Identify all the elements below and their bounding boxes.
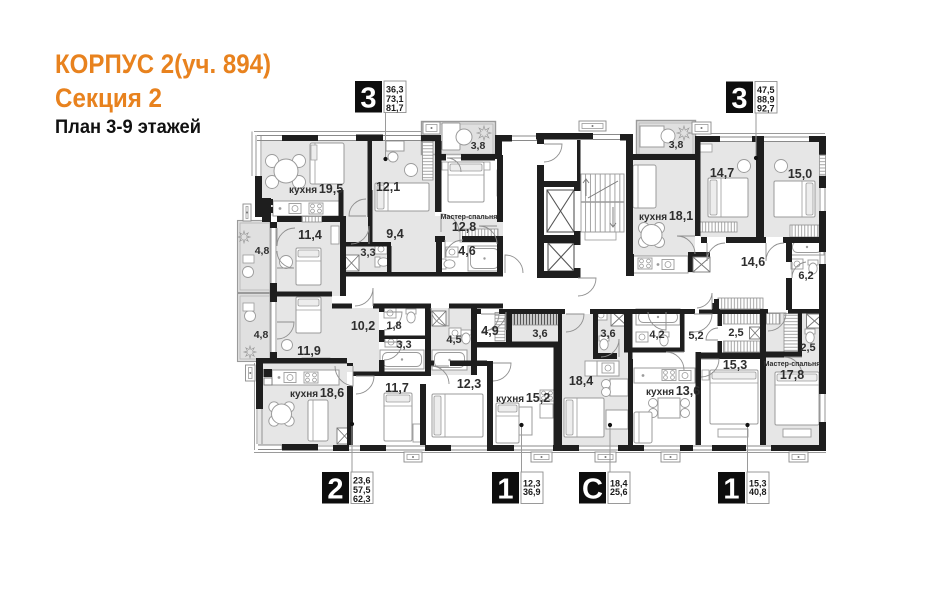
- svg-text:18,6: 18,6: [320, 386, 344, 400]
- svg-text:Мастер-спальня: Мастер-спальня: [764, 361, 821, 368]
- svg-text:81,7: 81,7: [386, 103, 404, 113]
- svg-text:2,5: 2,5: [800, 342, 815, 354]
- svg-text:кухня: кухня: [496, 394, 524, 405]
- svg-text:3,6: 3,6: [532, 328, 547, 340]
- svg-text:кухня: кухня: [289, 185, 317, 196]
- svg-text:кухня: кухня: [646, 387, 674, 398]
- svg-text:19,5: 19,5: [319, 182, 343, 196]
- svg-text:36,9: 36,9: [523, 487, 541, 497]
- svg-text:4,5: 4,5: [446, 334, 461, 346]
- svg-text:5,2: 5,2: [688, 330, 703, 342]
- svg-text:2: 2: [327, 474, 343, 506]
- svg-text:3,3: 3,3: [396, 339, 411, 351]
- svg-text:3: 3: [731, 83, 747, 115]
- svg-text:13,6: 13,6: [676, 384, 700, 398]
- svg-text:14,7: 14,7: [710, 166, 734, 180]
- svg-text:18,1: 18,1: [669, 209, 693, 223]
- svg-text:4,6: 4,6: [458, 244, 475, 258]
- svg-text:15,2: 15,2: [526, 391, 550, 405]
- svg-text:6,2: 6,2: [798, 270, 813, 282]
- svg-text:4,2: 4,2: [649, 329, 664, 341]
- svg-text:КОРПУС 2(уч. 894): КОРПУС 2(уч. 894): [55, 49, 271, 79]
- svg-text:11,4: 11,4: [298, 228, 322, 242]
- svg-text:12,8: 12,8: [452, 220, 476, 234]
- svg-text:17,8: 17,8: [780, 368, 804, 382]
- svg-text:12,3: 12,3: [457, 377, 481, 391]
- svg-text:4,8: 4,8: [255, 245, 270, 257]
- svg-text:10,2: 10,2: [351, 319, 375, 333]
- svg-text:11,7: 11,7: [385, 381, 409, 395]
- svg-text:Секция 2: Секция 2: [55, 83, 162, 113]
- svg-text:18,4: 18,4: [569, 374, 593, 388]
- svg-text:14,6: 14,6: [741, 255, 765, 269]
- svg-text:3,8: 3,8: [471, 140, 486, 152]
- svg-text:11,9: 11,9: [297, 344, 321, 358]
- svg-text:С: С: [582, 474, 603, 506]
- svg-text:1: 1: [497, 474, 513, 506]
- svg-text:1,8: 1,8: [386, 320, 401, 332]
- svg-text:2,5: 2,5: [728, 327, 743, 339]
- svg-text:12,1: 12,1: [376, 180, 400, 194]
- svg-text:кухня: кухня: [290, 389, 318, 400]
- svg-text:15,3: 15,3: [723, 358, 747, 372]
- svg-text:План 3-9 этажей: План 3-9 этажей: [55, 117, 201, 138]
- svg-text:25,6: 25,6: [610, 487, 628, 497]
- svg-text:9,4: 9,4: [386, 227, 403, 241]
- svg-text:4,9: 4,9: [481, 324, 498, 338]
- svg-text:3,6: 3,6: [600, 328, 615, 340]
- svg-text:3: 3: [360, 83, 376, 115]
- svg-text:92,7: 92,7: [757, 104, 775, 114]
- svg-text:3,3: 3,3: [360, 247, 375, 259]
- svg-text:1: 1: [723, 474, 739, 506]
- svg-text:4,8: 4,8: [254, 329, 269, 341]
- svg-text:3,8: 3,8: [669, 139, 684, 151]
- svg-text:40,8: 40,8: [749, 487, 767, 497]
- svg-text:15,0: 15,0: [788, 167, 812, 181]
- svg-text:62,3: 62,3: [353, 494, 371, 504]
- svg-text:кухня: кухня: [639, 212, 667, 223]
